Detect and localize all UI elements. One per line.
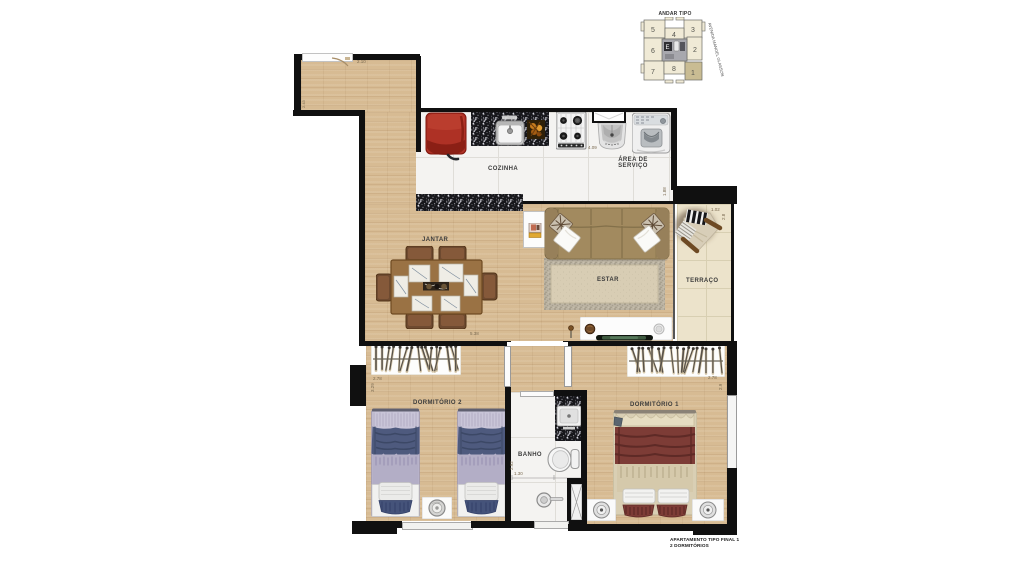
svg-text:5: 5 — [651, 27, 655, 34]
svg-text:1: 1 — [691, 70, 695, 77]
svg-text:3: 3 — [691, 27, 695, 34]
svg-text:2: 2 — [693, 47, 697, 54]
svg-text:4: 4 — [672, 32, 676, 39]
svg-text:6: 6 — [651, 48, 655, 55]
svg-text:8: 8 — [672, 66, 676, 73]
svg-text:E: E — [666, 45, 670, 51]
svg-text:7: 7 — [651, 69, 655, 76]
